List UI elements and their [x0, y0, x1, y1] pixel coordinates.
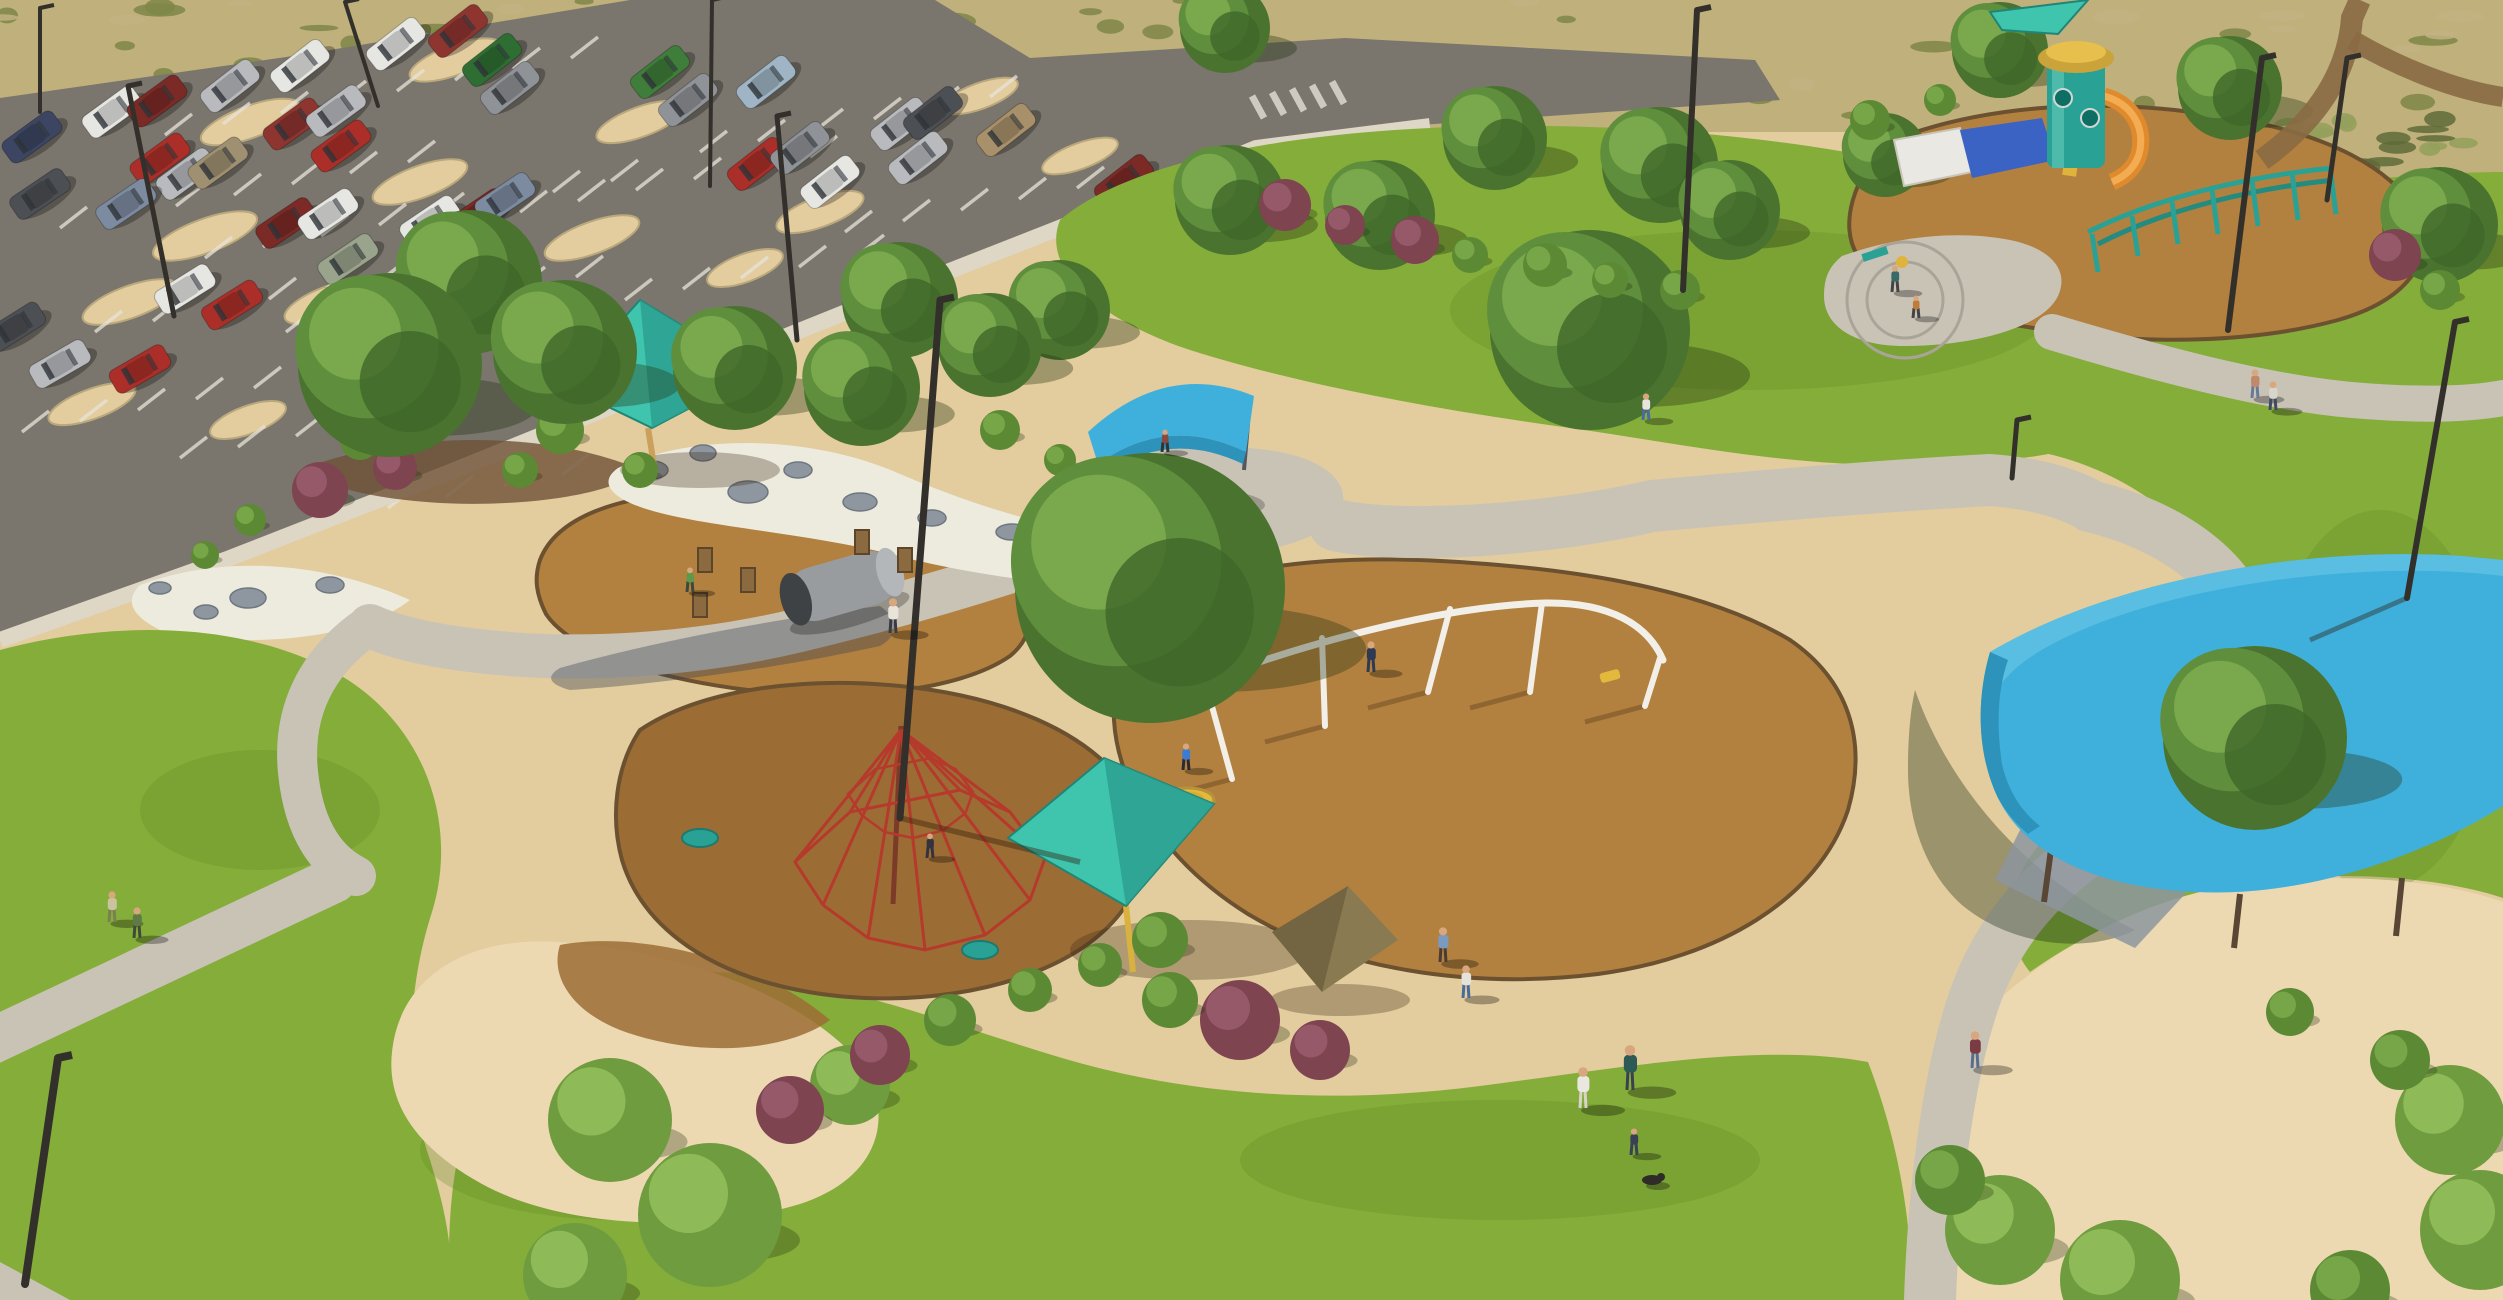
shrub-highlight — [2373, 233, 2402, 262]
person-head — [1162, 430, 1167, 435]
person-leg — [1463, 984, 1464, 998]
shrub-highlight — [193, 543, 208, 558]
tower-porthole — [2081, 109, 2099, 127]
tree-canopy-dark — [843, 367, 907, 431]
person-torso — [1624, 1055, 1637, 1073]
tree-canopy-dark — [973, 326, 1030, 383]
person-leg — [109, 909, 110, 923]
spinner-seat — [682, 829, 718, 847]
grass-tuft — [2093, 9, 2140, 25]
grass-tuft — [2428, 142, 2447, 150]
person-leg — [1892, 280, 1893, 292]
grass-tuft — [1079, 8, 1102, 15]
person-leg — [1183, 758, 1184, 770]
person-leg — [1585, 1090, 1586, 1108]
shrub-highlight — [1046, 446, 1064, 464]
grass-tuft — [2425, 31, 2457, 40]
person-head — [687, 568, 693, 574]
shrub-highlight — [1920, 1150, 1959, 1189]
shrub-highlight — [649, 1154, 728, 1233]
person-torso — [1182, 749, 1190, 759]
shrub-highlight — [1595, 265, 1615, 285]
shrub-highlight — [2069, 1229, 2135, 1295]
shrub-highlight — [505, 455, 525, 475]
grass-tuft — [2400, 94, 2435, 111]
person-head — [133, 907, 140, 914]
tree-canopy-dark — [2225, 704, 2326, 805]
shrub-highlight — [761, 1081, 798, 1118]
park-aerial-rendering — [0, 0, 2503, 1300]
person-torso — [1462, 972, 1472, 985]
person-torso — [1891, 271, 1899, 281]
person-head — [1439, 927, 1447, 935]
person-head — [2252, 369, 2259, 376]
person-leg — [890, 618, 891, 633]
person-torso — [2269, 388, 2277, 399]
shrub-highlight — [1081, 946, 1105, 970]
person-head — [889, 598, 897, 606]
boulder — [230, 588, 266, 608]
person-leg — [2270, 397, 2271, 410]
person-torso — [888, 606, 898, 620]
person-head — [1367, 641, 1374, 648]
person-head — [1892, 265, 1898, 271]
grass-tuft — [1789, 77, 1815, 91]
person-leg — [895, 618, 896, 633]
tree-canopy-dark — [541, 325, 620, 404]
light-pole-head — [2262, 55, 2276, 58]
grass-tuft — [496, 3, 524, 15]
person-torso — [1438, 935, 1448, 949]
shrub-highlight — [1146, 976, 1177, 1007]
grass-tuft — [2258, 10, 2306, 21]
person-leg — [134, 925, 135, 939]
grass-tuft — [115, 41, 135, 50]
person-torso — [1162, 434, 1169, 443]
person-torso — [1913, 300, 1920, 309]
shrub-highlight — [2375, 1035, 2408, 1068]
tree-canopy-dark — [1210, 11, 1260, 61]
shrub-highlight — [2270, 992, 2296, 1018]
person-leg — [139, 925, 140, 939]
person-leg — [1897, 280, 1898, 292]
light-pole-head — [2347, 55, 2361, 58]
grass-tuft — [2407, 126, 2449, 133]
tree-canopy-dark — [360, 331, 461, 432]
boulder — [149, 582, 171, 594]
shrub-highlight — [236, 506, 254, 524]
person-leg — [687, 581, 688, 592]
person-leg — [1913, 308, 1914, 318]
tree-canopy-dark — [2421, 204, 2485, 268]
lawn-shade-patch — [1240, 1100, 1760, 1220]
shrub-highlight — [1263, 183, 1292, 212]
log-post — [898, 548, 912, 572]
person-leg — [2252, 385, 2253, 398]
person-leg — [692, 581, 693, 592]
person-torso — [1630, 1134, 1638, 1144]
shrub-highlight — [296, 466, 327, 497]
person-leg — [1167, 442, 1168, 452]
person-torso — [1367, 648, 1376, 660]
shrub-highlight — [2316, 1256, 2360, 1300]
grass-tuft — [2416, 135, 2455, 142]
person-head — [1578, 1067, 1588, 1077]
log-post — [741, 568, 755, 592]
lawn-bottom-left — [0, 630, 451, 1300]
person-head — [1183, 743, 1189, 749]
light-pole — [710, 0, 712, 186]
tower-roof-top — [2046, 41, 2106, 63]
person-head — [1913, 296, 1918, 301]
tree-canopy-dark — [1105, 538, 1254, 687]
grass-tuft — [1910, 41, 1957, 53]
person-head — [1625, 1045, 1636, 1056]
shrub-highlight — [1011, 971, 1035, 995]
shrub-highlight — [557, 1067, 625, 1135]
boulder — [316, 577, 344, 593]
shrub-highlight — [1455, 240, 1475, 260]
person-head — [108, 891, 115, 898]
person-leg — [1162, 442, 1163, 452]
shrub-highlight — [531, 1231, 588, 1288]
log-post — [855, 530, 869, 554]
log-post — [698, 548, 712, 572]
shrub-highlight — [983, 413, 1005, 435]
person-shadow — [1581, 1105, 1625, 1116]
shrub-highlight — [1295, 1025, 1328, 1058]
person-head — [927, 834, 933, 840]
light-pole-head — [1697, 7, 1711, 10]
shrub-highlight — [2423, 273, 2445, 295]
light-pole-head — [58, 1055, 72, 1058]
person-shadow — [1628, 1086, 1676, 1098]
person-leg — [1468, 984, 1469, 998]
park-scene-canvas — [0, 0, 2503, 1300]
boulder — [784, 462, 812, 478]
person-leg — [1977, 1052, 1978, 1068]
person-leg — [1648, 408, 1649, 420]
person-leg — [1188, 758, 1189, 770]
grass-tuft — [227, 0, 252, 7]
spring-rider — [1896, 256, 1908, 268]
grass-tuft — [1097, 19, 1125, 34]
light-pole-head — [2455, 319, 2469, 322]
person-leg — [1631, 1143, 1632, 1155]
shrub-highlight — [1395, 220, 1421, 246]
person-torso — [2251, 376, 2259, 387]
person-leg — [1636, 1143, 1637, 1155]
tree-canopy-dark — [1044, 292, 1099, 347]
person-leg — [1373, 659, 1374, 673]
sail-shadow — [1270, 984, 1410, 1016]
spinner-seat — [962, 941, 998, 959]
person-leg — [1627, 1070, 1628, 1090]
shrub-highlight — [625, 455, 645, 475]
grass-tuft — [2449, 138, 2478, 149]
light-pole-head — [128, 83, 142, 86]
person-torso — [927, 839, 934, 849]
person-leg — [927, 847, 928, 858]
person-head — [2270, 381, 2277, 388]
tree-canopy-dark — [715, 345, 783, 413]
person-leg — [1972, 1052, 1973, 1068]
person-leg — [1643, 408, 1644, 420]
light-pole-head — [777, 113, 791, 116]
tree-canopy-dark — [1714, 192, 1769, 247]
grass-tuft — [2436, 11, 2484, 23]
person-leg — [1580, 1090, 1581, 1108]
person-leg — [1632, 1070, 1633, 1090]
person-head — [1462, 965, 1470, 973]
person-leg — [2257, 385, 2258, 398]
grass-tuft — [300, 25, 339, 31]
person-head — [1971, 1031, 1980, 1040]
play-tower-highlight — [2052, 58, 2064, 168]
boulder — [194, 605, 218, 619]
light-pole-head — [2017, 417, 2031, 420]
person-head — [1643, 393, 1649, 399]
grass-tuft — [2424, 111, 2456, 127]
person-leg — [1440, 947, 1441, 962]
tree-canopy-dark — [1984, 32, 2037, 85]
person-leg — [932, 847, 933, 858]
shrub-highlight — [1328, 208, 1350, 230]
person-torso — [1577, 1076, 1589, 1092]
person-leg — [1445, 947, 1446, 962]
shrub-highlight — [855, 1030, 888, 1063]
shrub-highlight — [1136, 916, 1167, 947]
grass-tuft — [1142, 25, 1173, 40]
person-leg — [1918, 308, 1919, 318]
person-leg — [1368, 659, 1369, 673]
shrub-highlight — [928, 998, 957, 1027]
dog-head — [1657, 1173, 1665, 1181]
tree-canopy-dark — [1478, 119, 1535, 176]
grass-tuft — [108, 15, 145, 26]
light-pole-head — [940, 297, 954, 300]
person-torso — [687, 573, 694, 583]
shrub-highlight — [1853, 103, 1875, 125]
shrub-highlight — [1926, 86, 1944, 104]
person-torso — [133, 914, 142, 926]
shrub-highlight — [1526, 246, 1550, 270]
tower-porthole — [2054, 89, 2072, 107]
person-torso — [1970, 1039, 1981, 1053]
grass-tuft — [2392, 44, 2421, 53]
shrub-highlight — [2429, 1179, 2495, 1245]
person-leg — [2275, 397, 2276, 410]
boulder — [843, 493, 877, 511]
grass-tuft — [1557, 16, 1576, 24]
grass-tuft — [2376, 132, 2411, 145]
person-leg — [114, 909, 115, 923]
person-torso — [1642, 399, 1650, 409]
shrub-highlight — [1206, 986, 1250, 1030]
person-head — [1631, 1128, 1637, 1134]
person-torso — [108, 898, 117, 910]
tree-canopy-dark — [1557, 293, 1667, 403]
grass-tuft — [2268, 25, 2297, 32]
